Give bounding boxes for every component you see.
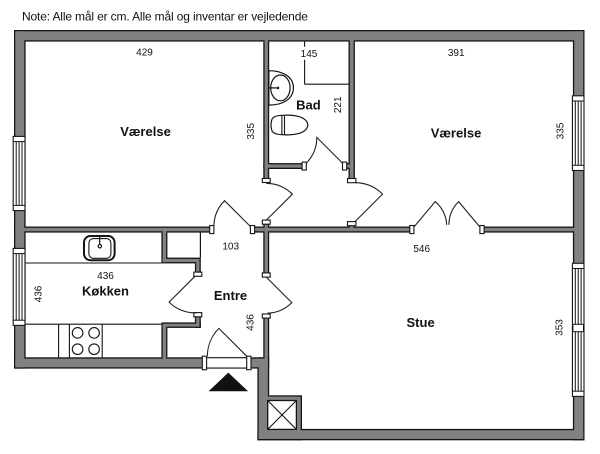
svg-text:353: 353 [555,319,566,336]
svg-text:436: 436 [97,271,114,282]
svg-text:103: 103 [222,242,239,253]
svg-text:Værelse: Værelse [431,126,482,141]
svg-text:429: 429 [136,48,153,59]
svg-text:335: 335 [555,122,566,139]
svg-text:Bad: Bad [296,98,321,113]
svg-text:Stue: Stue [407,315,435,330]
svg-text:391: 391 [448,48,465,59]
svg-text:145: 145 [301,49,318,60]
svg-text:436: 436 [33,285,44,302]
svg-text:335: 335 [246,123,257,140]
svg-text:436: 436 [246,314,257,331]
svg-text:Værelse: Værelse [120,124,171,139]
svg-text:Entre: Entre [214,288,247,303]
svg-text:Note: Alle mål er cm. Alle mål: Note: Alle mål er cm. Alle mål og invent… [22,10,308,24]
svg-text:546: 546 [413,244,430,255]
svg-text:221: 221 [333,96,344,113]
svg-text:Køkken: Køkken [82,283,129,298]
